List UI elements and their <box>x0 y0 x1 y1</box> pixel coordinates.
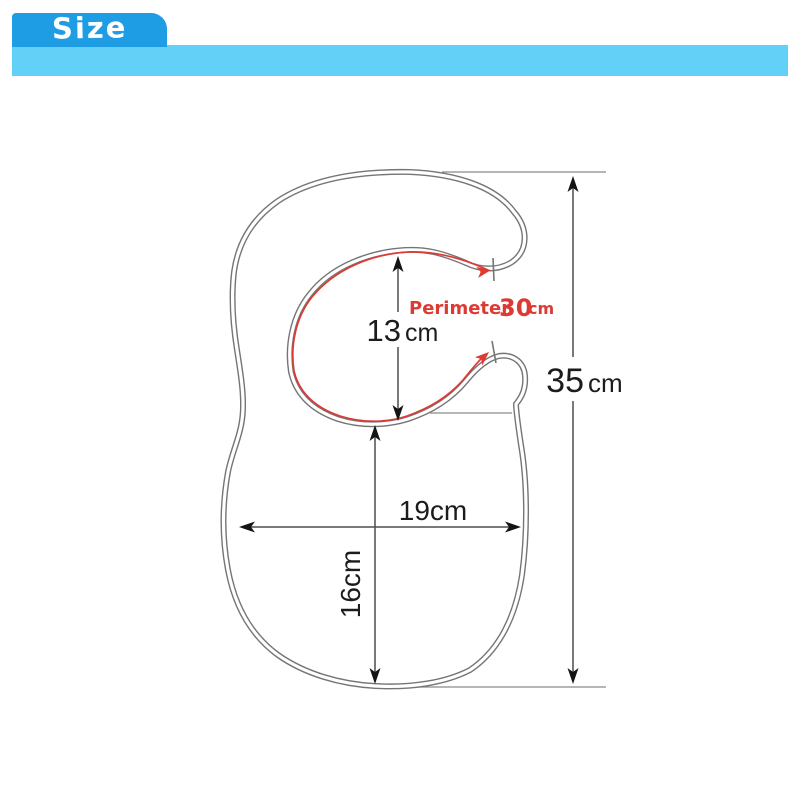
perimeter-tick-upper <box>493 258 494 281</box>
label-perimeter-unit: cm <box>528 299 554 318</box>
label-35-value: 35 <box>546 362 584 400</box>
label-13-unit: cm <box>405 319 438 347</box>
label-19: 19cm <box>399 495 467 526</box>
label-16: 16cm <box>335 550 366 618</box>
label-13-value: 13 <box>367 313 401 348</box>
label-perimeter-word: Perimeter <box>409 298 510 319</box>
size-chart-page: Size 13 <box>0 0 800 800</box>
bib-diagram: 13 cm Perimeter 30 cm 35 cm 19cm 16cm <box>0 0 800 800</box>
label-35-unit: cm <box>588 368 623 398</box>
